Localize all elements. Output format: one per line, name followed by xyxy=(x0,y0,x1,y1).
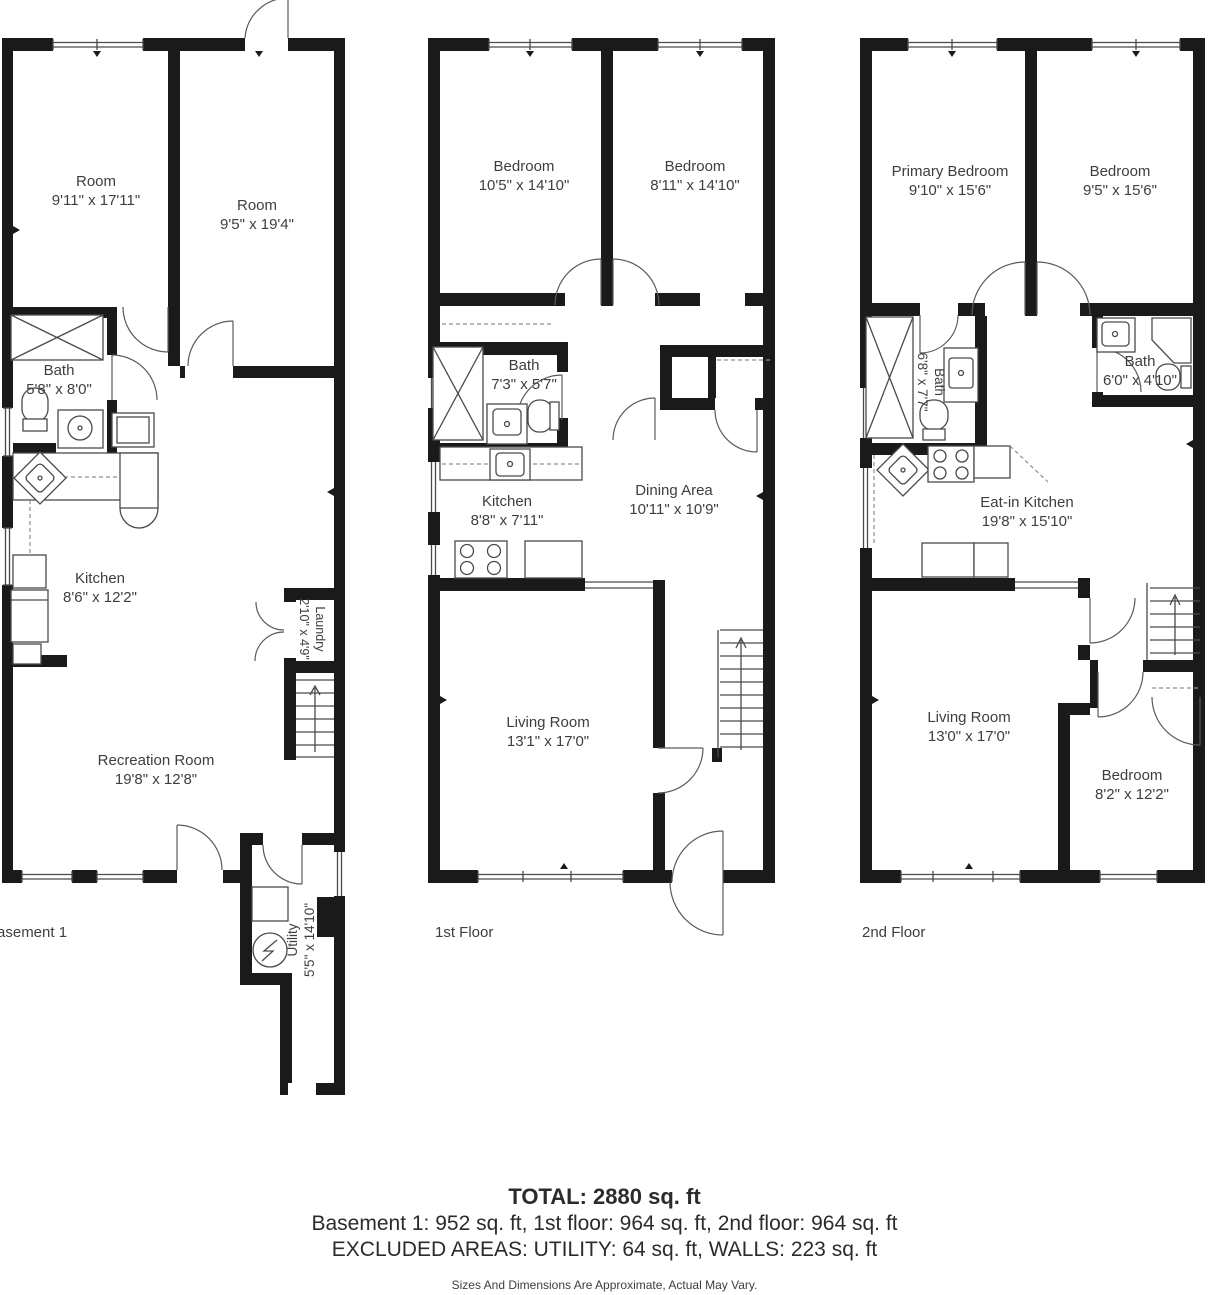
label-basement-room-2: Room9'5" x 19'4" xyxy=(220,196,294,234)
label-second-primary-bedroom: Primary Bedroom9'10" x 15'6" xyxy=(892,162,1009,200)
summary-floor-areas: Basement 1: 952 sq. ft, 1st floor: 964 s… xyxy=(0,1212,1209,1236)
basement-utility-fixtures xyxy=(252,887,288,967)
toilet-icon xyxy=(528,400,552,432)
floor-label-first: 1st Floor xyxy=(435,924,493,941)
label-second-eatin-kitchen: Eat-in Kitchen19'8" x 15'10" xyxy=(980,493,1073,531)
basement-stairs xyxy=(296,680,334,757)
label-basement-room-1: Room9'11" x 17'11" xyxy=(52,172,140,210)
label-first-bedroom-2: Bedroom8'11" x 14'10" xyxy=(650,157,740,195)
fridge-icon xyxy=(11,590,48,642)
label-basement-kitchen: Kitchen8'6" x 12'2" xyxy=(63,569,137,607)
first-floor-stairs xyxy=(718,630,763,757)
label-basement-bath: Bath5'8" x 8'0" xyxy=(26,361,92,399)
second-floor-stairs xyxy=(1147,583,1200,688)
label-second-bath-1: Bath6'8" x 7'7" xyxy=(914,352,948,411)
label-second-bedroom-2: Bedroom9'5" x 15'6" xyxy=(1083,162,1157,200)
label-basement-utility: Utility5'5" x 14'10" xyxy=(284,903,318,977)
label-second-living: Living Room13'0" x 17'0" xyxy=(927,708,1010,746)
floor-label-basement: Basement 1 xyxy=(0,924,67,941)
summary-total: TOTAL: 2880 sq. ft xyxy=(0,1184,1209,1210)
floorplan-page: Room9'11" x 17'11" Room9'5" x 19'4" Bath… xyxy=(0,0,1209,1295)
label-second-bedroom-3: Bedroom8'2" x 12'2" xyxy=(1095,766,1169,804)
label-first-bath: Bath7'3" x 5'7" xyxy=(491,356,557,394)
kitchen-peninsula xyxy=(922,543,974,577)
summary-excluded-areas: EXCLUDED AREAS: UTILITY: 64 sq. ft, WALL… xyxy=(0,1238,1209,1262)
label-basement-laundry: Laundry2'10" x 4'9" xyxy=(295,598,327,660)
label-second-bath-2: Bath6'0" x 4'10" xyxy=(1103,352,1177,390)
label-first-dining: Dining Area10'11" x 10'9" xyxy=(629,481,719,519)
basement-kitchen-fixtures xyxy=(11,452,158,664)
washer-icon xyxy=(112,413,154,447)
floorplan-drawing xyxy=(0,0,1209,1295)
utility-box xyxy=(252,887,288,921)
summary-disclaimer: Sizes And Dimensions Are Approximate, Ac… xyxy=(0,1278,1209,1292)
label-first-living: Living Room13'1" x 17'0" xyxy=(506,713,589,751)
label-first-kitchen: Kitchen8'8" x 7'11" xyxy=(471,492,544,530)
floor-label-second: 2nd Floor xyxy=(862,924,925,941)
label-first-bedroom-1: Bedroom10'5" x 14'10" xyxy=(479,157,570,195)
kitchen-peninsula xyxy=(120,453,158,508)
electrical-panel-icon xyxy=(253,933,287,967)
label-basement-recreation: Recreation Room19'8" x 12'8" xyxy=(98,751,215,789)
